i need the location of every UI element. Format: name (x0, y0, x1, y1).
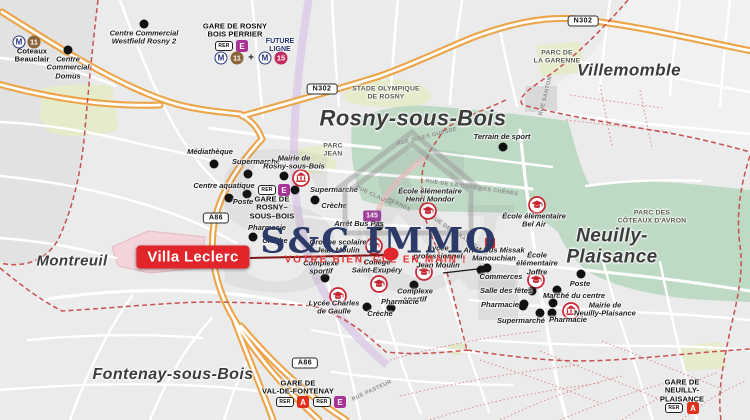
real-estate-map[interactable]: Rosny-sous-BoisVillemombleNeuilly-Plaisa… (0, 0, 750, 420)
watermark-layer: S& S&C IMMO VOTRE BIEN, CLÉ EN MAIN ! Vi… (0, 0, 750, 420)
property-name-label[interactable]: Villa Leclerc (136, 246, 249, 269)
house-logo-watermark: S& (0, 0, 750, 420)
property-marker[interactable] (384, 248, 399, 261)
brand-tagline: VOTRE BIEN, CLÉ EN MAIN ! (285, 255, 468, 266)
